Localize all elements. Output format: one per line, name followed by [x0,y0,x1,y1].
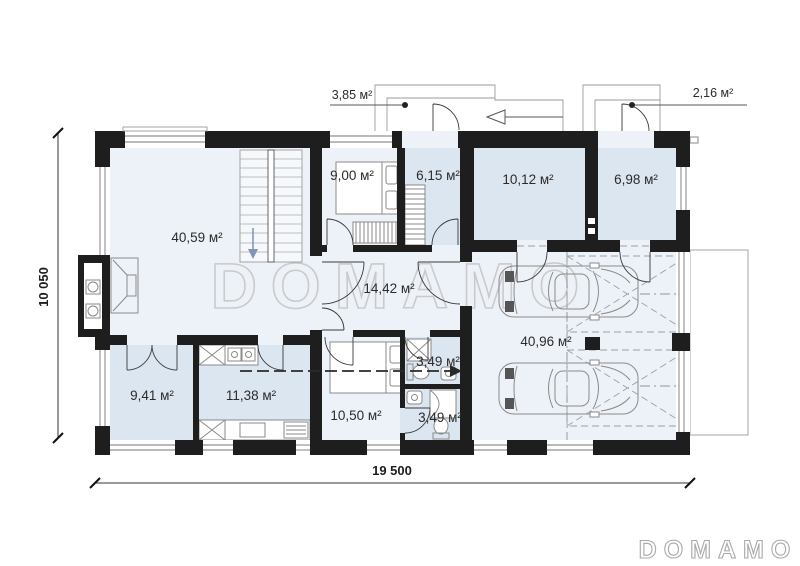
window-left-lower [95,350,110,426]
floor-plan: DOMAMO [0,0,800,566]
label-pantry: 9,41 м² [130,388,174,403]
front-door [433,104,459,131]
window-kitchen-bottom [203,440,233,455]
porch-annotation-rear: 2,16 м² [629,86,747,108]
window-living-left [95,167,110,255]
porch-rear-label: 2,16 м² [693,86,734,100]
footer-brand-logo: DOMAMO [639,536,798,564]
label-living-room: 40,59 м² [171,230,223,245]
porch-front-label: 3,85 м² [332,88,373,102]
label-storage: 10,12 м² [502,172,554,187]
floor-plan-page: DOMAMO [0,0,800,566]
room-boiler [598,148,676,240]
room-storage [474,148,585,240]
boiler-ext-door [622,104,649,131]
window-bedroom2-bottom [367,440,400,455]
wardrobe-vestibule [405,185,425,245]
window-living-top [123,127,207,148]
driveway-outline [690,250,748,435]
garage-door-right-2 [676,351,690,432]
label-garage: 40,96 м² [520,334,572,349]
entry-arrow [487,110,563,124]
label-kitchen: 11,38 м² [226,388,277,403]
window-boiler-right [676,167,690,210]
window-garage-bottom-1 [474,440,507,455]
width-dimension-label: 19 500 [372,463,412,478]
dimension-width: 19 500 [90,463,695,488]
window-bedroom1-top [330,131,392,148]
garage-door-right-1 [676,252,690,333]
window-living-bottom [110,440,175,455]
label-boiler-room: 6,98 м² [614,172,658,187]
label-bathroom-2: 3,49 м² [418,410,462,425]
window-garage-bottom-2 [547,440,593,455]
porch-front [375,85,563,133]
stairs-stringer [268,150,274,262]
depth-dimension-label: 10 050 [36,267,51,307]
label-bedroom-1: 9,00 м² [330,168,374,183]
wardrobe-bedroom-1 [353,222,398,243]
label-hall: 14,42 м² [363,281,415,296]
bed-bedroom-2 [330,342,403,393]
staircase [240,150,302,262]
window-kitchen-bottom-2 [296,440,310,455]
label-bedroom-2: 10,50 м² [330,408,382,423]
label-bathroom-1: 3,49 м² [416,354,460,369]
label-vestibule: 6,15 м² [416,168,460,183]
dimension-depth: 10 050 [36,128,63,443]
wall-vent [690,137,698,143]
